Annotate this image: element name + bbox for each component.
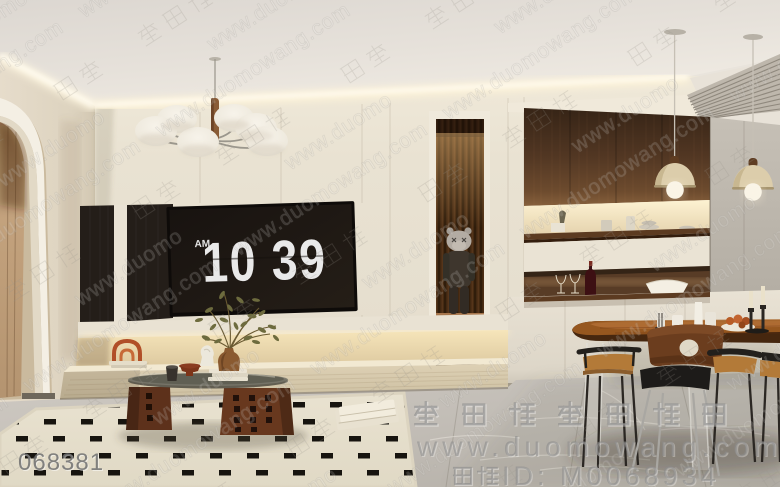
svg-text:068381: 068381 [18, 449, 104, 476]
svg-text:www.duomowang.com: www.duomowang.com [416, 431, 780, 462]
svg-text:ID: M0068934: ID: M0068934 [502, 461, 720, 487]
